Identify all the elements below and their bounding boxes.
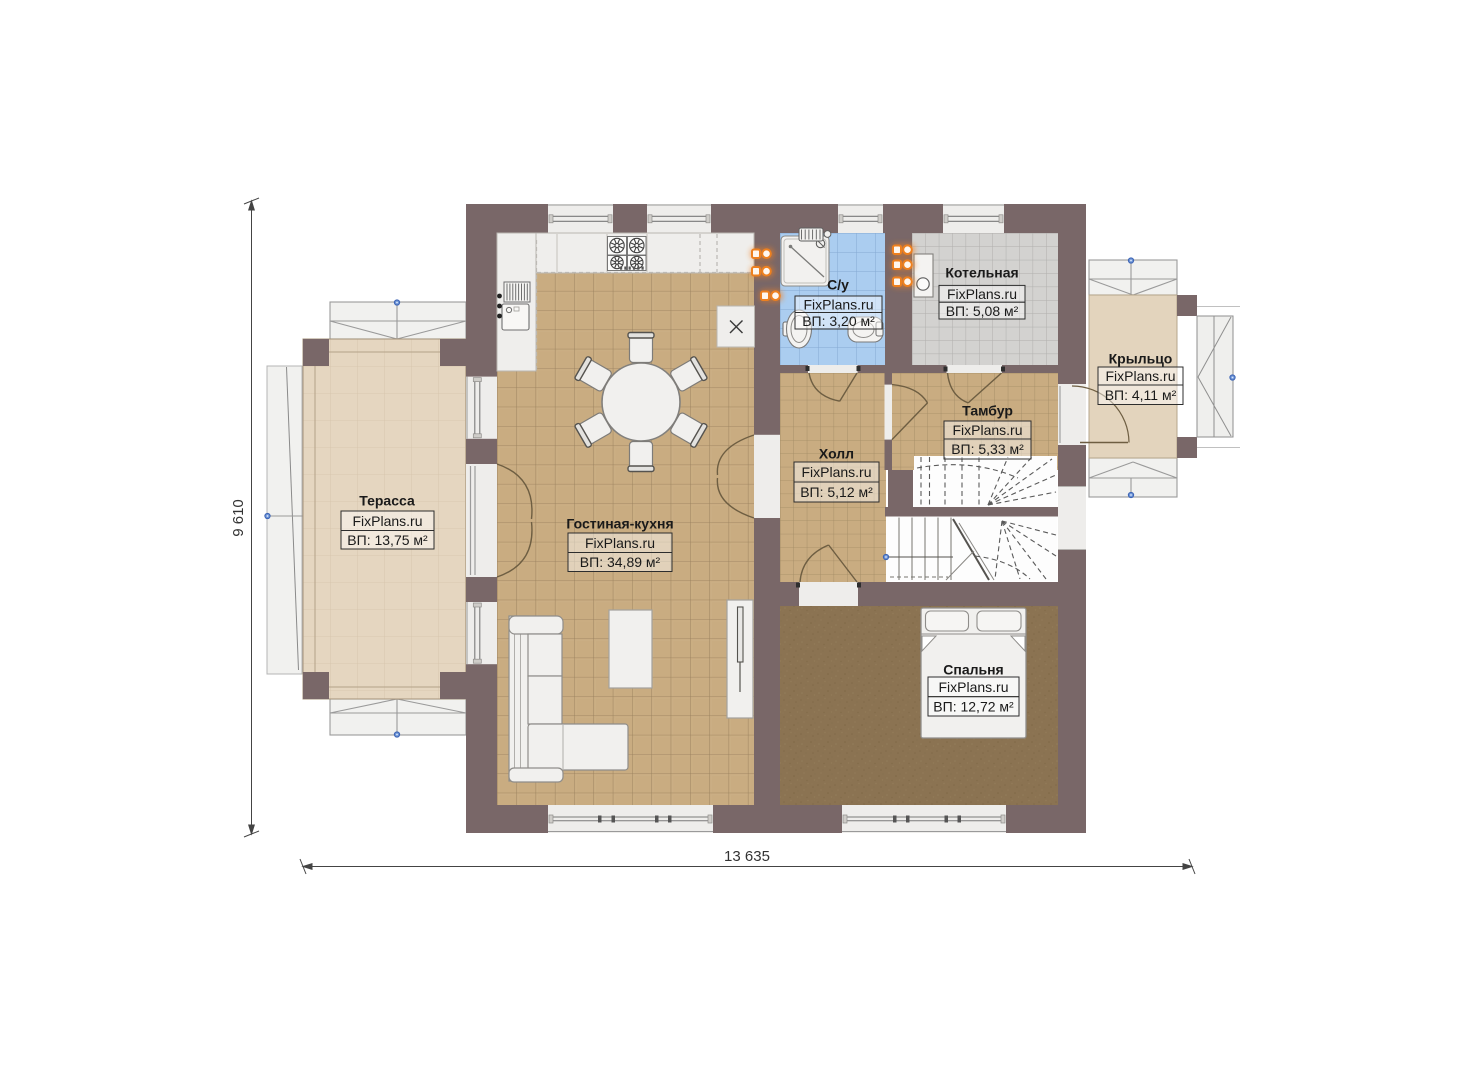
svg-text:С/у: С/у: [827, 277, 849, 293]
svg-text:13 635: 13 635: [724, 848, 770, 865]
svg-text:ВП: 13,75 м²: ВП: 13,75 м²: [347, 532, 428, 548]
svg-text:Терасса: Терасса: [359, 493, 415, 509]
svg-text:Котельная: Котельная: [945, 265, 1018, 281]
svg-text:FixPlans.ru: FixPlans.ru: [801, 464, 871, 480]
svg-text:ВП: 34,89 м²: ВП: 34,89 м²: [580, 554, 661, 570]
svg-text:Холл: Холл: [819, 446, 854, 462]
svg-text:Гостиная-кухня: Гостиная-кухня: [566, 516, 673, 532]
svg-text:ВП: 5,33 м²: ВП: 5,33 м²: [951, 441, 1024, 457]
svg-text:FixPlans.ru: FixPlans.ru: [803, 296, 873, 312]
svg-text:FixPlans.ru: FixPlans.ru: [585, 535, 655, 551]
svg-text:ВП: 12,72 м²: ВП: 12,72 м²: [933, 699, 1014, 715]
svg-text:9 610: 9 610: [230, 499, 247, 537]
svg-text:FixPlans.ru: FixPlans.ru: [1105, 368, 1175, 384]
svg-text:FixPlans.ru: FixPlans.ru: [352, 513, 422, 529]
svg-text:FixPlans.ru: FixPlans.ru: [938, 679, 1008, 695]
svg-text:Спальня: Спальня: [943, 662, 1003, 678]
svg-text:FixPlans.ru: FixPlans.ru: [947, 286, 1017, 302]
svg-text:ВП: 4,11 м²: ВП: 4,11 м²: [1105, 387, 1177, 403]
svg-text:ВП: 5,08 м²: ВП: 5,08 м²: [946, 303, 1019, 319]
svg-text:ВП: 5,12 м²: ВП: 5,12 м²: [800, 484, 873, 500]
svg-text:Тамбур: Тамбур: [962, 403, 1013, 419]
svg-text:ВП: 3,20 м²: ВП: 3,20 м²: [802, 313, 875, 329]
svg-text:FixPlans.ru: FixPlans.ru: [952, 422, 1022, 438]
svg-text:Крыльцо: Крыльцо: [1109, 351, 1173, 367]
